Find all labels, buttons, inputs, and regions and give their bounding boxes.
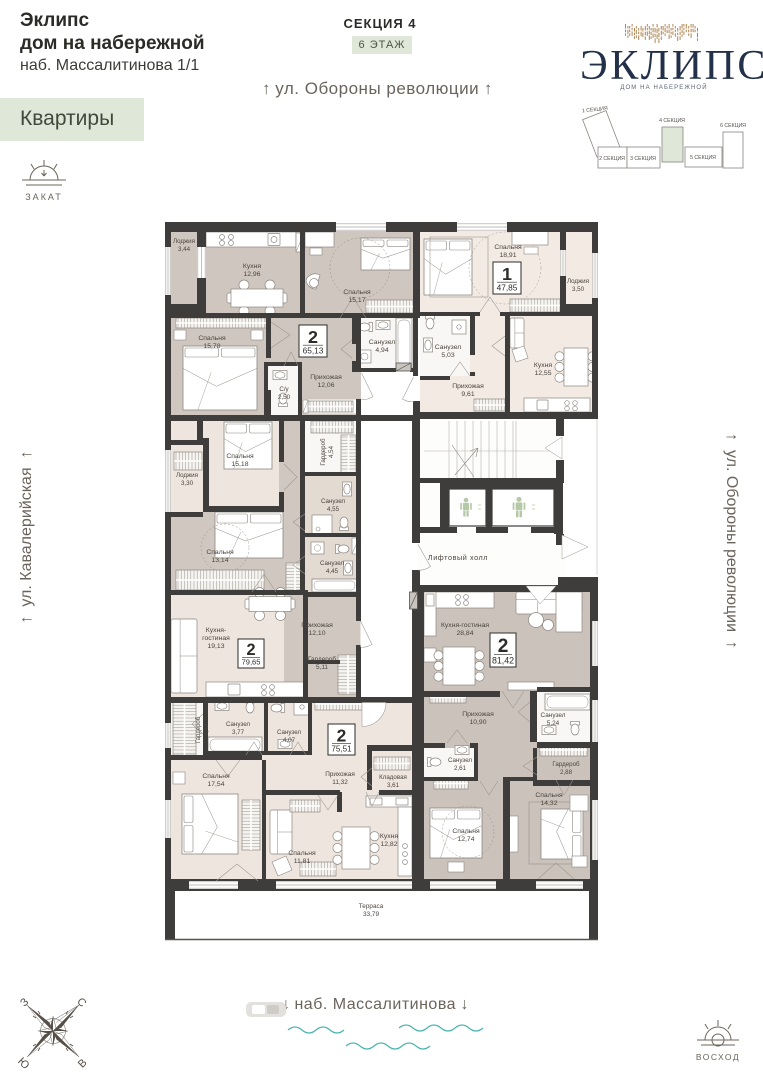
svg-text:Кухня: Кухня <box>243 263 262 270</box>
svg-text:13,14: 13,14 <box>211 557 228 564</box>
svg-text:4,07: 4,07 <box>283 737 296 744</box>
svg-text:2 СЕКЦИЯ: 2 СЕКЦИЯ <box>599 156 625 162</box>
svg-text:15,17: 15,17 <box>348 297 365 304</box>
svg-text:Спальня: Спальня <box>226 453 254 460</box>
svg-text:81,42: 81,42 <box>492 656 514 666</box>
svg-text:Санузел: Санузел <box>448 757 472 764</box>
svg-text:5,11: 5,11 <box>316 664 328 671</box>
svg-text:Санузел: Санузел <box>277 729 301 736</box>
svg-text:3,30: 3,30 <box>181 480 194 487</box>
svg-text:Лоджия: Лоджия <box>176 472 198 479</box>
svg-text:4 СЕКЦИЯ: 4 СЕКЦИЯ <box>659 118 685 124</box>
svg-text:Санузел: Санузел <box>320 560 344 567</box>
svg-text:2: 2 <box>308 327 318 347</box>
svg-text:С/у: С/у <box>279 386 289 393</box>
svg-text:12,82: 12,82 <box>380 841 397 848</box>
svg-text:4,52: 4,52 <box>204 724 210 736</box>
svg-text:Кухня: Кухня <box>380 833 399 840</box>
svg-text:Гардероб: Гардероб <box>196 716 202 743</box>
svg-text:15,18: 15,18 <box>231 461 248 468</box>
svg-text:Спальня: Спальня <box>206 549 234 556</box>
svg-text:Прихожая: Прихожая <box>452 383 484 390</box>
svg-text:Лоджия: Лоджия <box>567 278 589 285</box>
svg-text:Кухня-: Кухня- <box>206 627 226 634</box>
svg-text:4,55: 4,55 <box>327 506 340 513</box>
svg-text:65,13: 65,13 <box>303 346 324 356</box>
svg-text:9,61: 9,61 <box>461 391 474 398</box>
svg-text:47,85: 47,85 <box>497 283 518 293</box>
svg-text:Спальня: Спальня <box>343 289 371 296</box>
svg-text:Ю: Ю <box>15 1056 31 1072</box>
svg-text:18,91: 18,91 <box>499 252 516 259</box>
svg-text:ЗАКАТ: ЗАКАТ <box>25 192 62 202</box>
svg-text:Терраса: Терраса <box>359 903 384 910</box>
svg-text:3,44: 3,44 <box>178 246 191 253</box>
svg-text:Санузел: Санузел <box>541 712 566 719</box>
svg-text:Лифтовый холл: Лифтовый холл <box>428 553 488 562</box>
svg-text:11,81: 11,81 <box>294 858 311 865</box>
svg-text:17,54: 17,54 <box>207 781 224 788</box>
svg-text:4,45: 4,45 <box>326 568 339 575</box>
svg-text:4,94: 4,94 <box>375 347 388 354</box>
svg-text:19,13: 19,13 <box>207 643 224 650</box>
svg-text:В: В <box>76 1057 90 1071</box>
svg-text:4,54: 4,54 <box>328 445 335 458</box>
svg-text:ВОСХОД: ВОСХОД <box>696 1052 740 1062</box>
svg-text:Спальня: Спальня <box>288 850 316 857</box>
svg-text:Спальня: Спальня <box>202 773 230 780</box>
svg-text:Спальня: Спальня <box>535 792 563 799</box>
svg-text:ДОМ НА НАБЕРЕЖНОЙ: ДОМ НА НАБЕРЕЖНОЙ <box>620 83 707 91</box>
svg-text:Кухня: Кухня <box>534 362 553 369</box>
svg-text:79,65: 79,65 <box>242 658 261 667</box>
svg-text:2,50: 2,50 <box>278 394 291 401</box>
svg-text:Санузел: Санузел <box>321 498 345 505</box>
svg-text:33,79: 33,79 <box>363 911 379 918</box>
svg-text:Спальня: Спальня <box>198 335 226 342</box>
svg-text:12,74: 12,74 <box>457 836 474 843</box>
svg-text:15,78: 15,78 <box>203 343 220 350</box>
svg-text:Прихожая: Прихожая <box>310 374 342 381</box>
svg-text:3 СЕКЦИЯ: 3 СЕКЦИЯ <box>630 156 656 162</box>
svg-text:10,90: 10,90 <box>469 719 486 726</box>
svg-text:11,32: 11,32 <box>332 779 348 786</box>
svg-text:Лоджия: Лоджия <box>173 238 195 245</box>
svg-text:Кладовая: Кладовая <box>379 774 407 781</box>
svg-text:5,24: 5,24 <box>547 720 560 727</box>
svg-text:12,55: 12,55 <box>534 370 551 377</box>
svg-text:Прихожая: Прихожая <box>325 771 355 778</box>
svg-text:75,51: 75,51 <box>331 745 352 754</box>
svg-text:2,88: 2,88 <box>560 769 573 776</box>
svg-text:Спальня: Спальня <box>494 244 522 251</box>
svg-text:5,03: 5,03 <box>441 352 454 359</box>
svg-text:3,77: 3,77 <box>232 729 245 736</box>
svg-text:5 СЕКЦИЯ: 5 СЕКЦИЯ <box>690 155 716 161</box>
svg-text:28,84: 28,84 <box>456 630 473 637</box>
svg-text:3,50: 3,50 <box>572 286 585 293</box>
svg-text:12,10: 12,10 <box>308 630 325 637</box>
svg-text:Спальня: Спальня <box>452 828 480 835</box>
svg-text:Гардероб: Гардероб <box>320 438 327 466</box>
svg-text:2: 2 <box>337 725 347 745</box>
svg-text:Прихожая: Прихожая <box>462 711 494 718</box>
svg-text:3,61: 3,61 <box>387 782 400 789</box>
svg-text:Санузел: Санузел <box>226 721 250 728</box>
svg-text:1: 1 <box>502 264 512 284</box>
svg-text:Санузел: Санузел <box>369 339 396 346</box>
svg-text:2: 2 <box>498 636 509 657</box>
svg-text:Кухня-гостиная: Кухня-гостиная <box>441 622 489 629</box>
svg-text:Гардероб: Гардероб <box>552 761 580 768</box>
svg-text:ЭКЛИПС: ЭКЛИПС <box>580 43 763 89</box>
svg-text:2,61: 2,61 <box>454 765 467 772</box>
svg-text:12,96: 12,96 <box>243 271 260 278</box>
svg-text:Прихожая: Прихожая <box>301 622 333 629</box>
svg-text:14,32: 14,32 <box>540 800 557 807</box>
svg-text:6 СЕКЦИЯ: 6 СЕКЦИЯ <box>720 123 746 129</box>
svg-text:Санузел: Санузел <box>435 344 462 351</box>
svg-text:Гардероб: Гардероб <box>308 655 336 663</box>
svg-text:12,06: 12,06 <box>317 382 334 389</box>
svg-text:гостиная: гостиная <box>202 635 230 642</box>
